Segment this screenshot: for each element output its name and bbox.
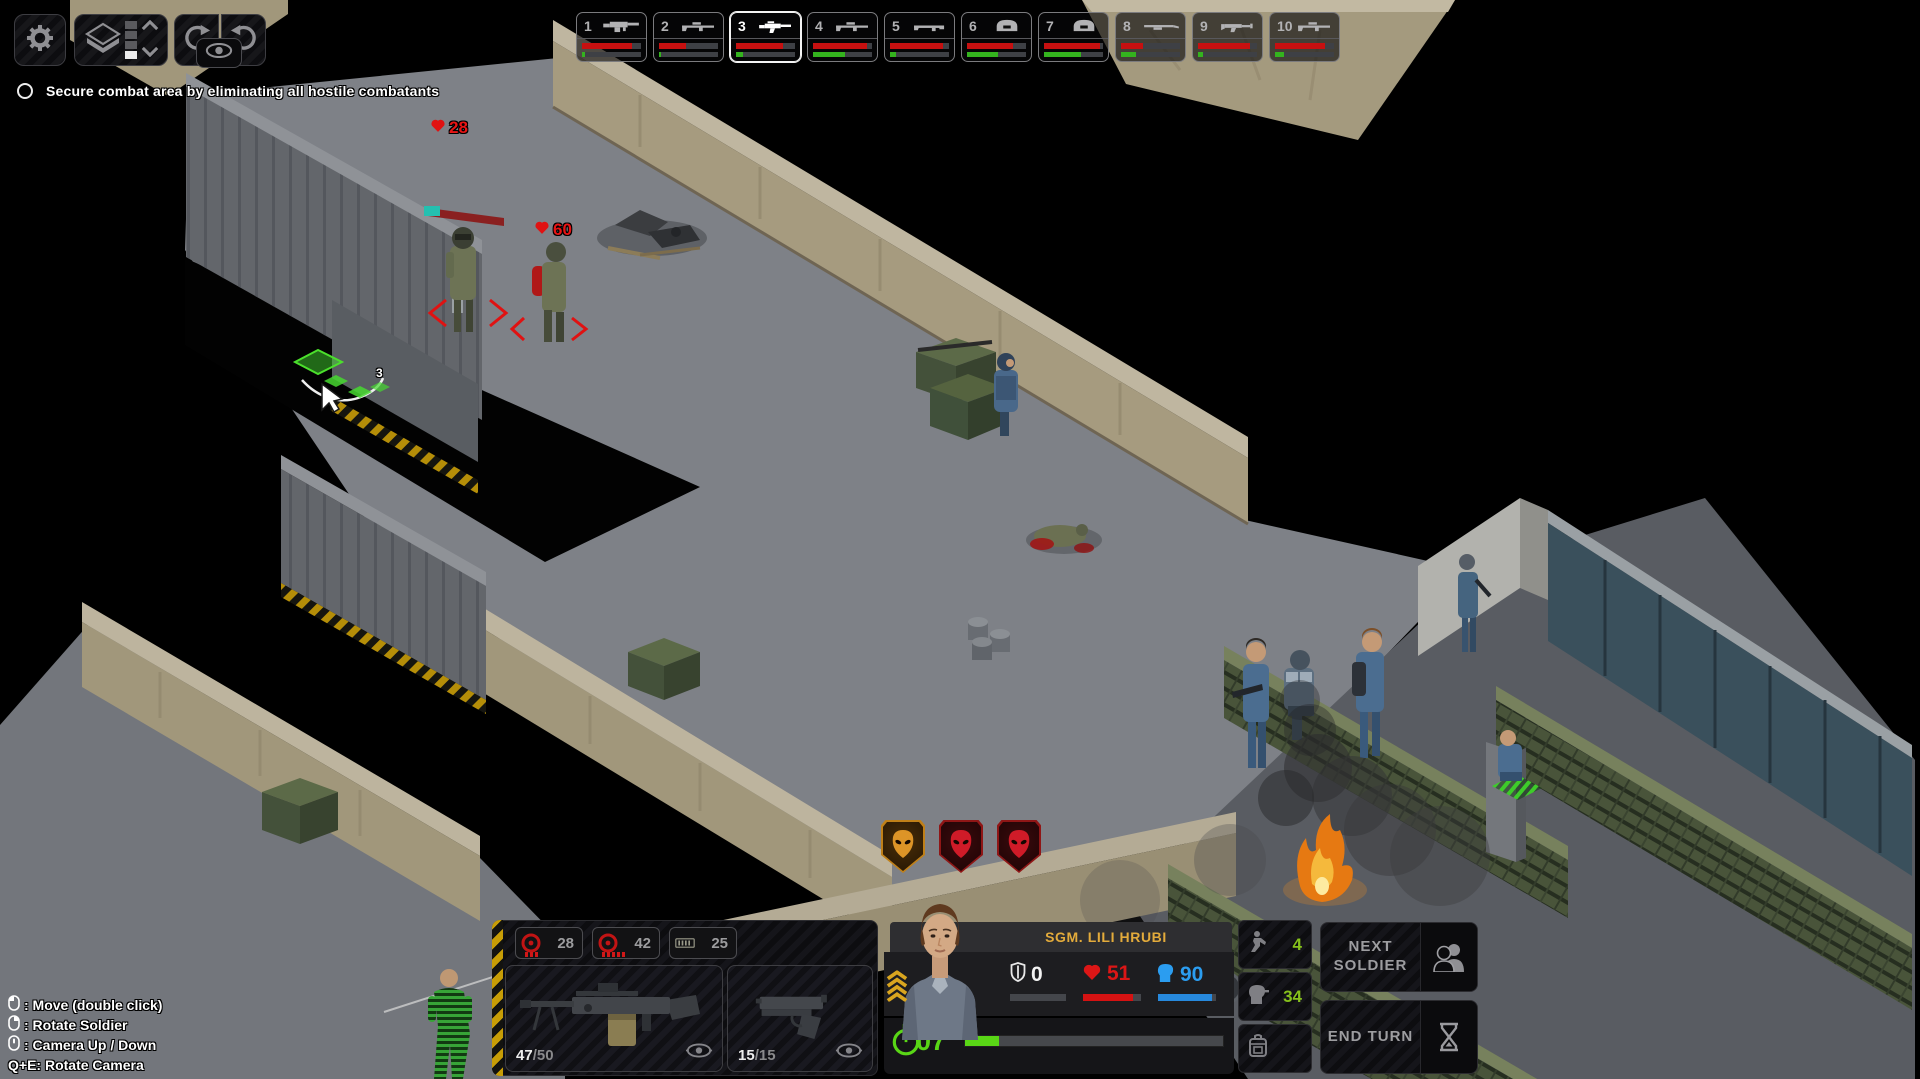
objective-checkbox <box>17 83 33 99</box>
soldier-slot[interactable]: 10 <box>1269 12 1340 62</box>
slot-number: 7 <box>1046 18 1062 34</box>
slot-number: 2 <box>661 18 677 34</box>
heart-icon <box>534 220 550 240</box>
chevron-down-icon[interactable] <box>141 44 159 62</box>
slot-health-bar <box>1121 43 1180 49</box>
visibility-toggle-button[interactable] <box>196 38 242 68</box>
hazard-stripe <box>492 920 503 1076</box>
heart-icon <box>1082 963 1102 986</box>
ammo-ticks <box>525 952 538 957</box>
slot-number: 5 <box>892 18 908 34</box>
soldier-slot[interactable]: 4 <box>807 12 878 62</box>
ammo-counter[interactable]: 25 <box>669 927 737 959</box>
soldier-slot[interactable]: 5 <box>884 12 955 62</box>
hotkey-label: : Move (double click) <box>24 997 162 1013</box>
ammo-value: 28 <box>557 935 574 952</box>
morale-bar <box>1158 994 1216 1001</box>
heart-icon <box>430 118 446 138</box>
weapon-icon <box>910 18 950 33</box>
ammo-icon <box>521 933 541 953</box>
level-selector-button[interactable] <box>74 14 168 66</box>
enemy-hp-marker: 28 <box>430 118 468 138</box>
weapon-icon <box>1218 18 1258 33</box>
weapon-icon <box>756 18 796 33</box>
ammo-icon <box>598 933 618 953</box>
slot-health-bar <box>1044 43 1103 49</box>
soldier-portrait[interactable] <box>898 894 982 1040</box>
gear-icon <box>24 22 56 59</box>
armor-stat: 0 <box>1010 962 1043 987</box>
soldier-panel: SGM. LILI HRUBI 07 0 51 90 <box>884 920 1234 1076</box>
slot-number: 9 <box>1200 18 1216 34</box>
psi-head-icon <box>1156 962 1175 988</box>
health-stat: 51 <box>1082 962 1130 986</box>
slot-number: 6 <box>969 18 985 34</box>
ammo-icon <box>675 933 695 953</box>
alien-head-icon <box>1005 828 1033 865</box>
side-counter-value: 34 <box>1283 987 1302 1007</box>
level-indicator <box>125 21 137 59</box>
side-counter[interactable]: 34 <box>1238 972 1312 1021</box>
slot-ap-bar <box>582 52 641 57</box>
slot-ap-bar <box>967 52 1026 57</box>
slot-number: 4 <box>815 18 831 34</box>
weapon-panel: 28 42 25 47/50 15/15 <box>492 920 878 1076</box>
hourglass-icon <box>1420 1001 1477 1073</box>
side-counter-icon <box>1239 929 1270 960</box>
chevron-up-icon[interactable] <box>141 18 159 36</box>
weapon-icon <box>1064 18 1104 33</box>
time-units-bar <box>964 1035 1224 1047</box>
hotkey-hints: : Move (double click) : Rotate Soldier :… <box>8 996 162 1076</box>
enemy-tracker-badge[interactable] <box>939 820 983 873</box>
slot-health-bar <box>813 43 872 49</box>
slot-ap-bar <box>1121 52 1180 57</box>
enemy-tracker-badges <box>881 820 1041 873</box>
ammo-value: 25 <box>711 935 728 952</box>
slot-health-bar <box>890 43 949 49</box>
next-soldier-icon <box>1420 923 1477 991</box>
end-turn-button[interactable]: END TURN <box>1320 1000 1478 1074</box>
soldier-name: SGM. LILI HRUBI <box>1045 929 1167 945</box>
side-counter-icon <box>1239 981 1270 1012</box>
slot-ap-bar <box>813 52 872 57</box>
side-counter[interactable] <box>1238 1024 1312 1073</box>
morale-stat: 90 <box>1156 962 1203 988</box>
soldier-slot[interactable]: 3 <box>730 12 801 62</box>
weapon-icon <box>987 18 1027 33</box>
secondary-ammo: 15/15 <box>738 1047 776 1064</box>
end-turn-label: END TURN <box>1321 1001 1420 1073</box>
slot-health-bar <box>659 43 718 49</box>
game-screen: Secure combat area by eliminating all ho… <box>0 0 1920 1079</box>
soldier-slot[interactable]: 6 <box>961 12 1032 62</box>
health-bar <box>1083 994 1141 1001</box>
side-counter[interactable]: 4 <box>1238 920 1312 969</box>
primary-ammo: 47/50 <box>516 1047 554 1064</box>
ammo-counter[interactable]: 42 <box>592 927 660 959</box>
soldier-slot[interactable]: 8 <box>1115 12 1186 62</box>
slot-ap-bar <box>890 52 949 57</box>
weapon-icon <box>833 18 873 33</box>
layers-icon <box>83 20 123 61</box>
objective-text: Secure combat area by eliminating all ho… <box>46 83 439 99</box>
enemy-hp-marker: 60 <box>534 220 572 240</box>
objective-row: Secure combat area by eliminating all ho… <box>17 83 439 99</box>
weapon-icon <box>602 18 642 33</box>
reaction-eye-icon[interactable] <box>835 1043 863 1063</box>
shield-icon <box>1010 962 1026 987</box>
pistol-image <box>752 985 848 1043</box>
ammo-counters: 28 42 25 <box>515 927 737 959</box>
hotkey-label: : Camera Up / Down <box>24 1037 156 1053</box>
slot-health-bar <box>1198 43 1257 49</box>
next-soldier-button[interactable]: NEXT SOLDIER <box>1320 922 1478 992</box>
ammo-counter[interactable]: 28 <box>515 927 583 959</box>
soldier-slot[interactable]: 7 <box>1038 12 1109 62</box>
mouse-icon <box>8 1015 24 1034</box>
slot-number: 8 <box>1123 18 1139 34</box>
slot-ap-bar <box>736 52 795 57</box>
soldier-slot[interactable]: 2 <box>653 12 724 62</box>
slot-ap-bar <box>1044 52 1103 57</box>
side-counters: 4 34 <box>1238 920 1312 1076</box>
slot-number: 3 <box>738 18 754 34</box>
mouse-icon <box>8 995 24 1014</box>
soldier-slot[interactable]: 1 <box>576 12 647 62</box>
weapon-icon <box>1295 18 1335 33</box>
alien-head-icon <box>889 828 917 865</box>
slot-number: 10 <box>1277 18 1293 34</box>
squad-bar: 1 2 3 4 5 <box>576 12 1340 62</box>
slot-ap-bar <box>1275 52 1334 57</box>
hotkey-label: Q+E: Rotate Camera <box>8 1057 144 1073</box>
reaction-eye-icon[interactable] <box>685 1043 713 1063</box>
enemy-tracker-badge[interactable] <box>997 820 1041 873</box>
side-counter-icon <box>1239 1033 1270 1064</box>
soldier-slot[interactable]: 9 <box>1192 12 1263 62</box>
slot-ap-bar <box>659 52 718 57</box>
move-cost-label: 3 <box>376 366 383 380</box>
settings-button[interactable] <box>14 14 66 66</box>
alien-head-icon <box>947 828 975 865</box>
slot-number: 1 <box>584 18 600 34</box>
side-counter-value: 4 <box>1293 935 1302 955</box>
slot-health-bar <box>1275 43 1334 49</box>
mouse-icon <box>8 1035 24 1054</box>
next-soldier-label: NEXT SOLDIER <box>1321 923 1420 991</box>
lmg-image <box>514 978 714 1050</box>
ammo-value: 42 <box>634 935 651 952</box>
slot-ap-bar <box>1198 52 1257 57</box>
ammo-ticks <box>602 952 625 957</box>
eye-icon <box>205 43 233 63</box>
secondary-weapon-slot[interactable]: 15/15 <box>727 965 873 1072</box>
enemy-tracker-badge[interactable] <box>881 820 925 873</box>
slot-health-bar <box>736 43 795 49</box>
rank-insignia <box>886 970 908 1007</box>
primary-weapon-slot[interactable]: 47/50 <box>505 965 723 1072</box>
weapon-icon <box>679 18 719 33</box>
weapon-icon <box>1141 18 1181 33</box>
armor-bar <box>1010 994 1066 1001</box>
slot-health-bar <box>582 43 641 49</box>
hotkey-label: : Rotate Soldier <box>24 1017 127 1033</box>
slot-health-bar <box>967 43 1026 49</box>
